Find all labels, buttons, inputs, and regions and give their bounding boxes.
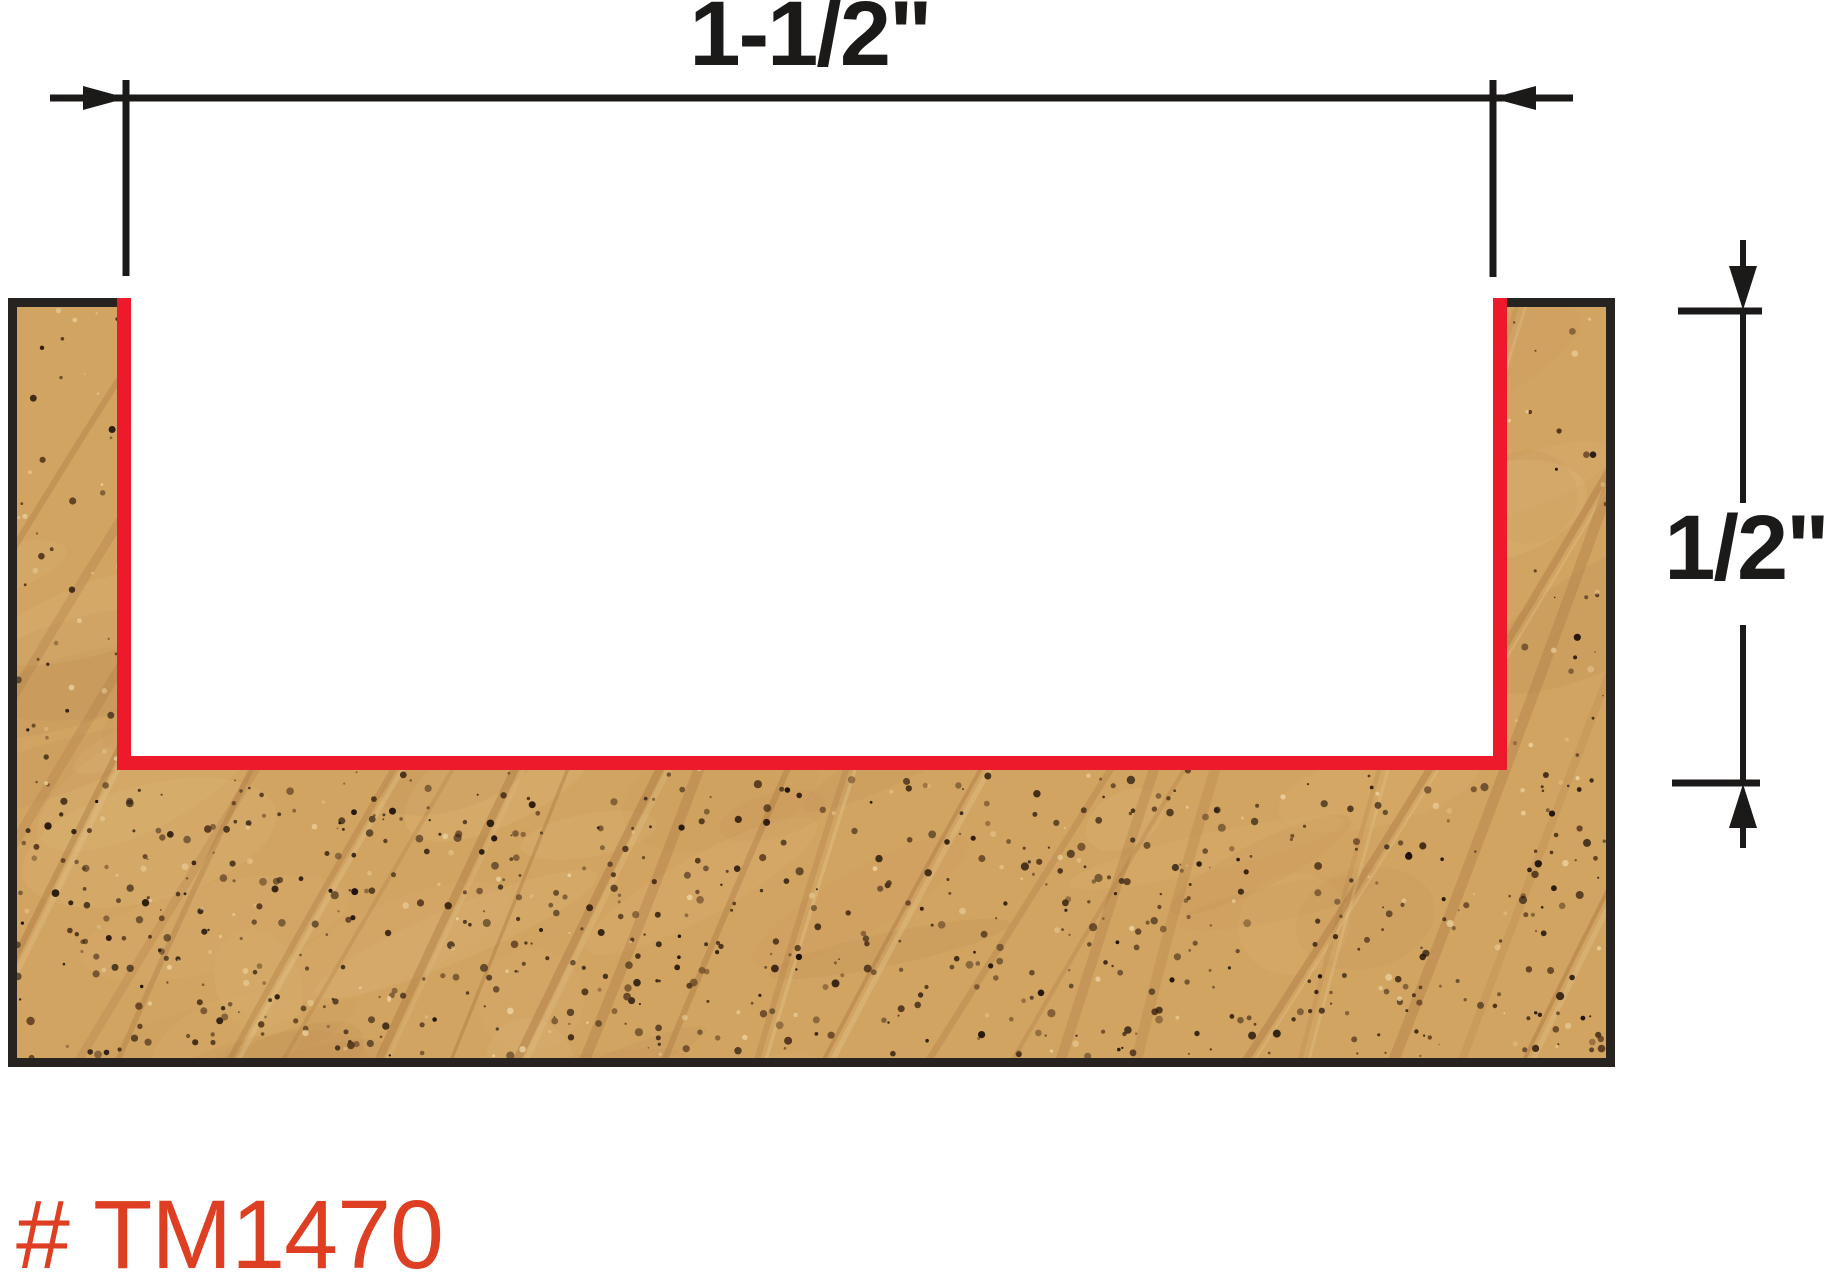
part-number-label: # TM1470 <box>16 1186 443 1280</box>
width-arrow-right-icon <box>83 86 127 110</box>
groove-cutout <box>117 298 1507 770</box>
depth-arrow-up-icon <box>1729 784 1757 828</box>
width-arrow-left-icon <box>1492 86 1536 110</box>
diagram-canvas: 1-1/2" 1/2" # TM1470 <box>0 0 1829 1280</box>
width-dimension <box>50 80 1573 277</box>
depth-dimension-label: 1/2" <box>1653 502 1829 594</box>
width-dimension-label: 1-1/2" <box>560 0 1060 80</box>
depth-arrow-down-icon <box>1729 266 1757 310</box>
